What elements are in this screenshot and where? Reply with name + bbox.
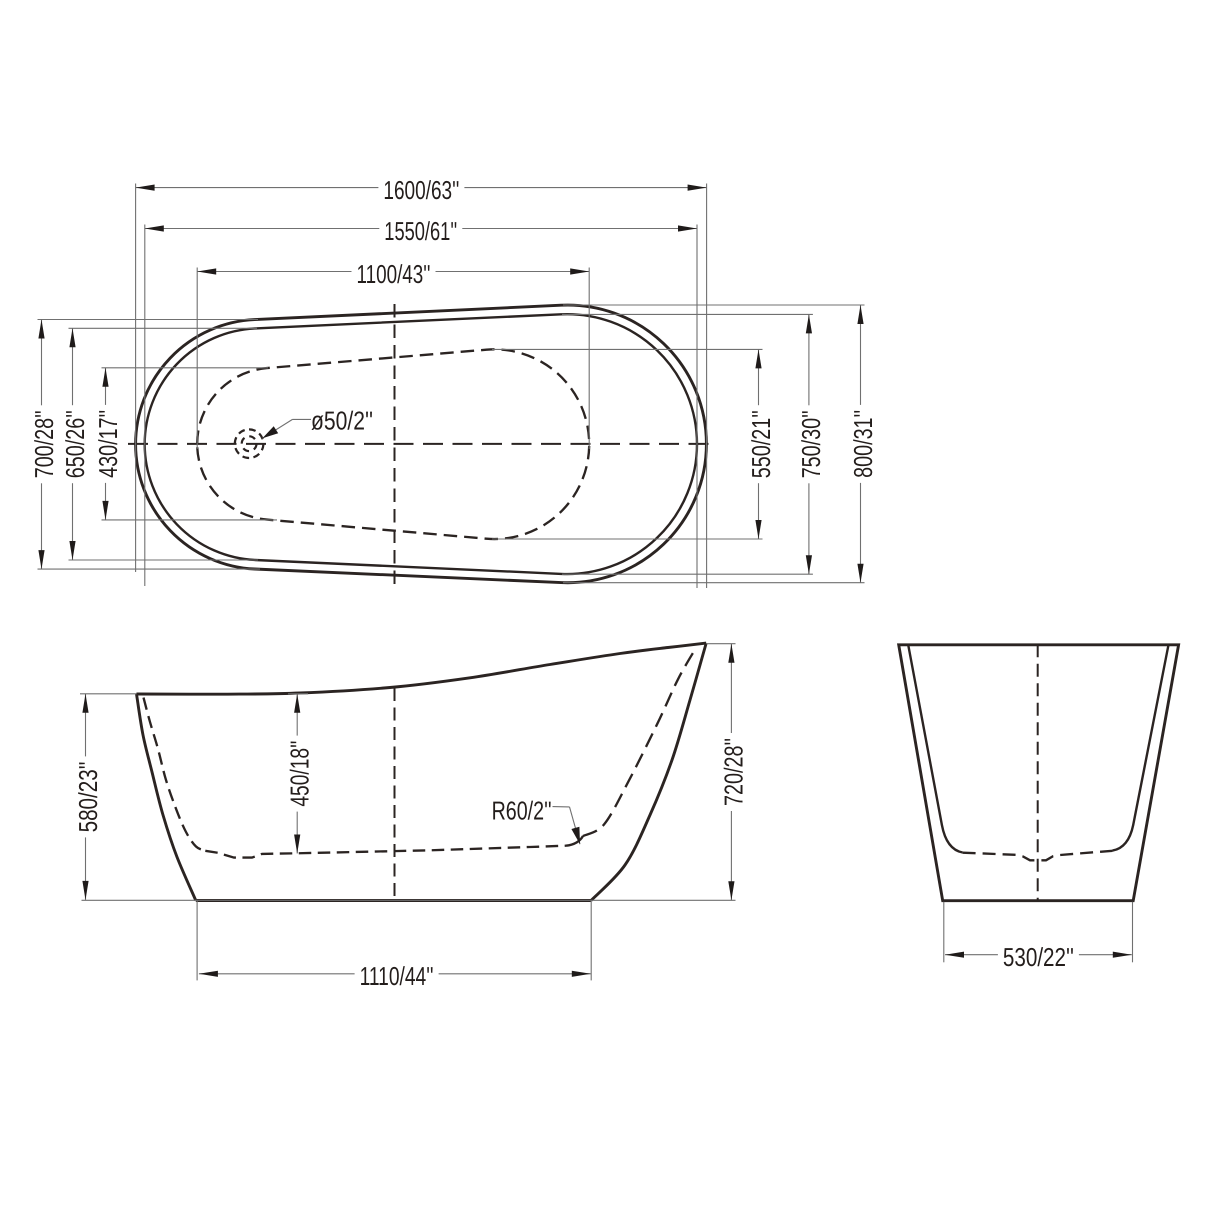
svg-text:1100/43'': 1100/43'' [357, 259, 431, 289]
svg-text:720/28'': 720/28'' [719, 738, 749, 806]
svg-text:1550/61'': 1550/61'' [384, 216, 457, 246]
svg-text:580/23'': 580/23'' [73, 761, 103, 832]
svg-text:750/30'': 750/30'' [796, 410, 826, 478]
svg-text:430/17'': 430/17'' [93, 410, 123, 478]
svg-text:800/31'': 800/31'' [848, 410, 878, 478]
svg-text:ø50/2'': ø50/2'' [311, 406, 373, 436]
svg-text:530/22'': 530/22'' [1003, 942, 1074, 972]
svg-text:1110/44'': 1110/44'' [360, 961, 434, 991]
svg-text:550/21'': 550/21'' [746, 410, 776, 478]
svg-text:450/18'': 450/18'' [285, 741, 315, 807]
svg-text:700/28'': 700/28'' [29, 410, 59, 478]
svg-text:1600/63'': 1600/63'' [383, 175, 459, 205]
svg-text:R60/2'': R60/2'' [492, 795, 552, 825]
svg-text:650/26'': 650/26'' [60, 410, 90, 478]
